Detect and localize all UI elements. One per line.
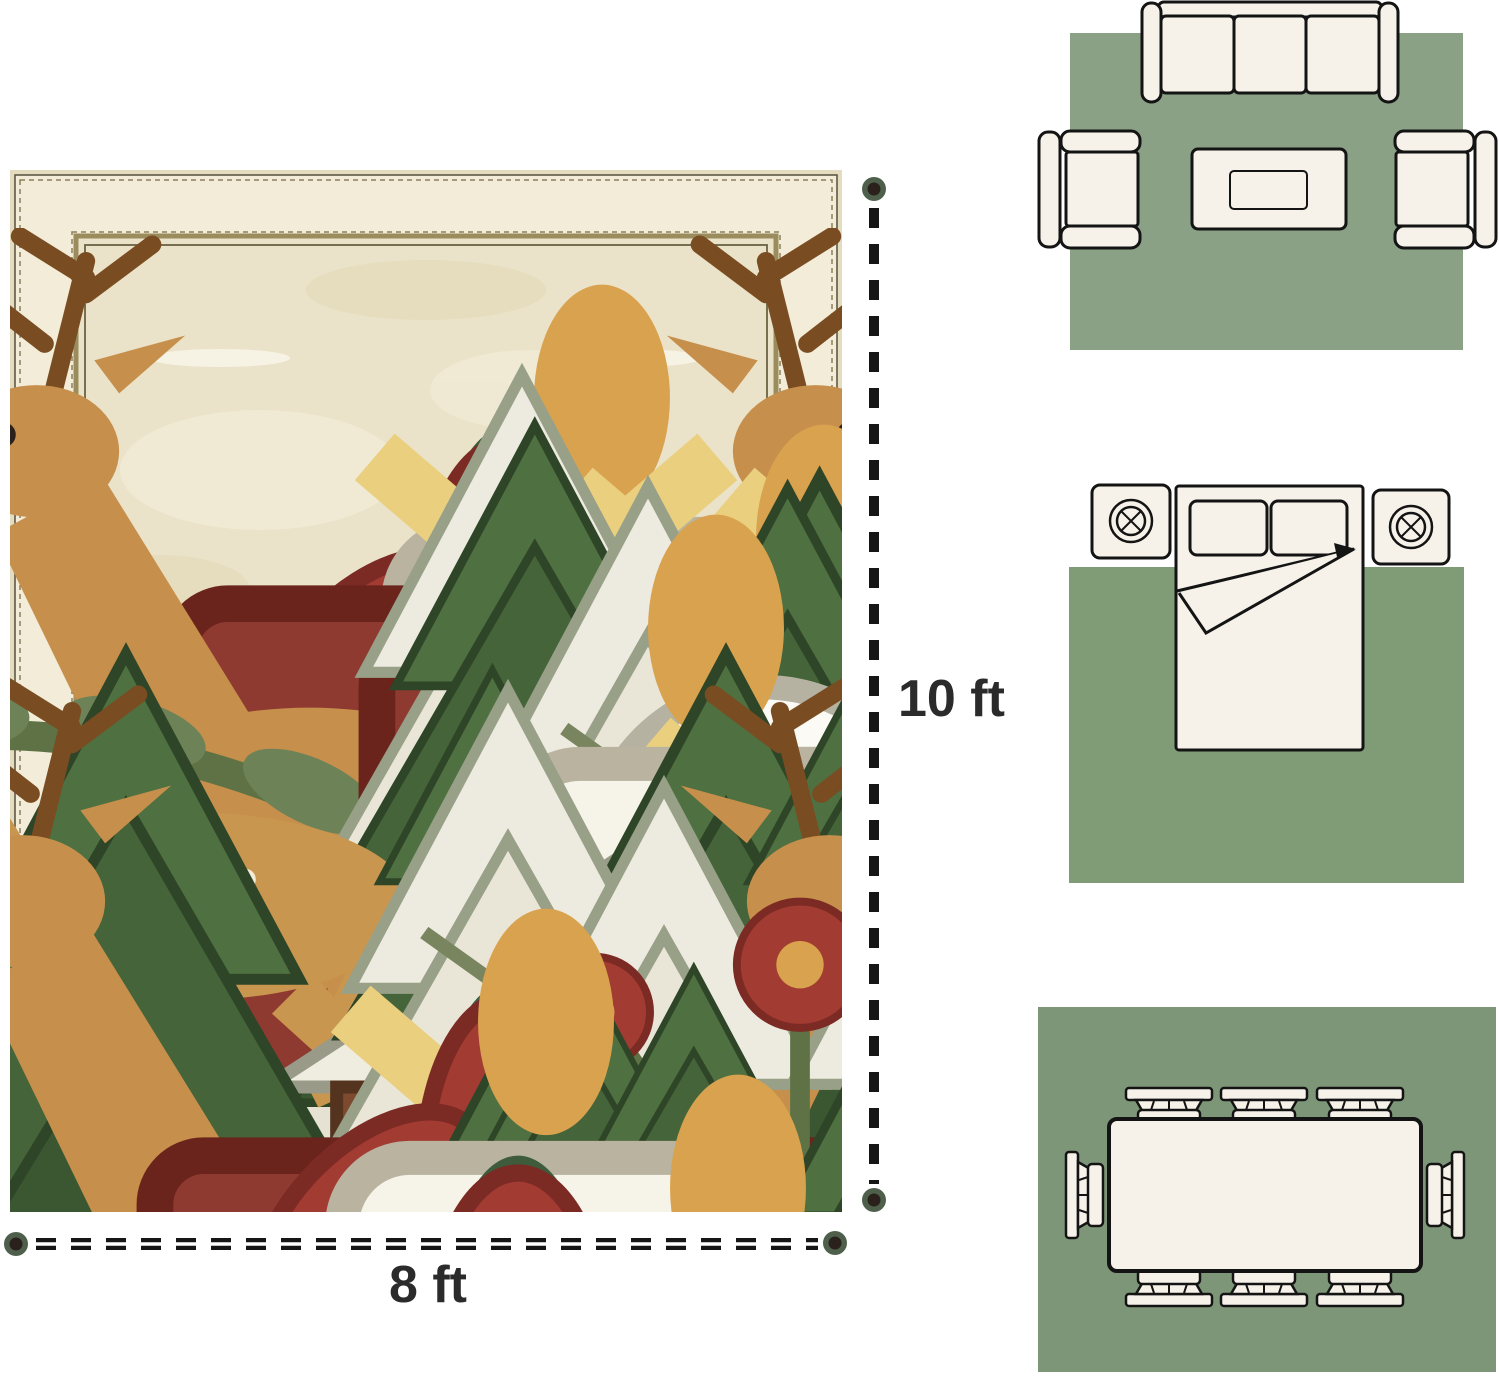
pillow-icon [1190,501,1267,555]
dimension-endpoint-top [862,177,886,201]
chair-icon [1317,1270,1403,1306]
nightstand-icon [1092,485,1170,558]
leaping-deer-icon [0,1285,610,1379]
holly-icon [420,1372,1221,1379]
chair-icon [1427,1152,1464,1238]
armchair-icon [1395,131,1496,248]
lamp-icon [1390,506,1432,548]
lamp-icon [1110,500,1152,542]
armchair-icon [1039,131,1140,248]
leaping-deer-icon [242,1285,1007,1379]
height-dimension: 10 ft [862,177,1005,1212]
chair-icon [1066,1152,1103,1238]
living-room-layout [1039,2,1496,350]
dimension-endpoint-left [4,1232,28,1256]
coffee-table-icon [1192,149,1346,229]
bedroom-layout [1069,485,1464,883]
dining-table-icon [1109,1119,1421,1271]
width-label: 8 ft [389,1256,467,1314]
chair-icon [1221,1270,1307,1306]
nightstand-icon [1373,490,1449,564]
width-dimension: 8 ft [4,1231,847,1314]
gift-icon [199,1252,786,1379]
dining-room-layout [1038,1007,1496,1372]
rug-size-guide: 10 ft 8 ft [0,0,1499,1379]
bed-icon [1176,486,1363,750]
dimension-endpoint-right [823,1231,847,1255]
chair-icon [1126,1270,1212,1306]
height-label: 10 ft [898,670,1005,728]
sofa-icon [1142,2,1398,102]
dimension-endpoint-bottom [862,1188,886,1212]
